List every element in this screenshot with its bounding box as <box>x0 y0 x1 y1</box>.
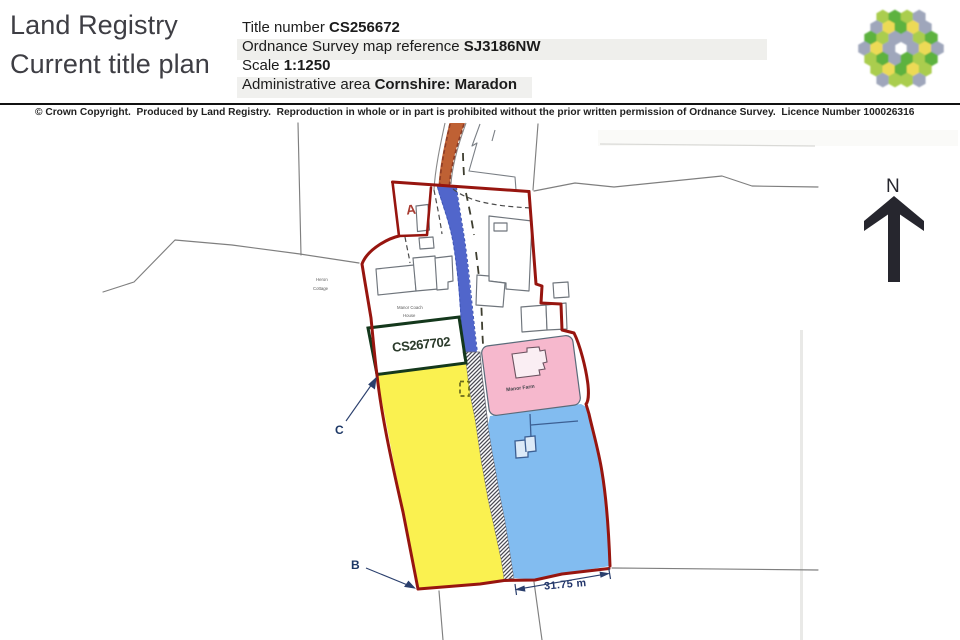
svg-text:B: B <box>351 558 360 572</box>
svg-text:31.75 m: 31.75 m <box>544 577 587 593</box>
svg-text:House: House <box>403 313 416 318</box>
svg-text:A: A <box>405 202 417 218</box>
svg-text:C: C <box>335 423 344 437</box>
svg-text:Manor Coach: Manor Coach <box>397 305 423 310</box>
svg-text:CS267702: CS267702 <box>391 334 451 355</box>
svg-text:Cottage: Cottage <box>313 286 329 291</box>
svg-text:N: N <box>886 176 900 197</box>
svg-text:Heron: Heron <box>316 277 328 282</box>
